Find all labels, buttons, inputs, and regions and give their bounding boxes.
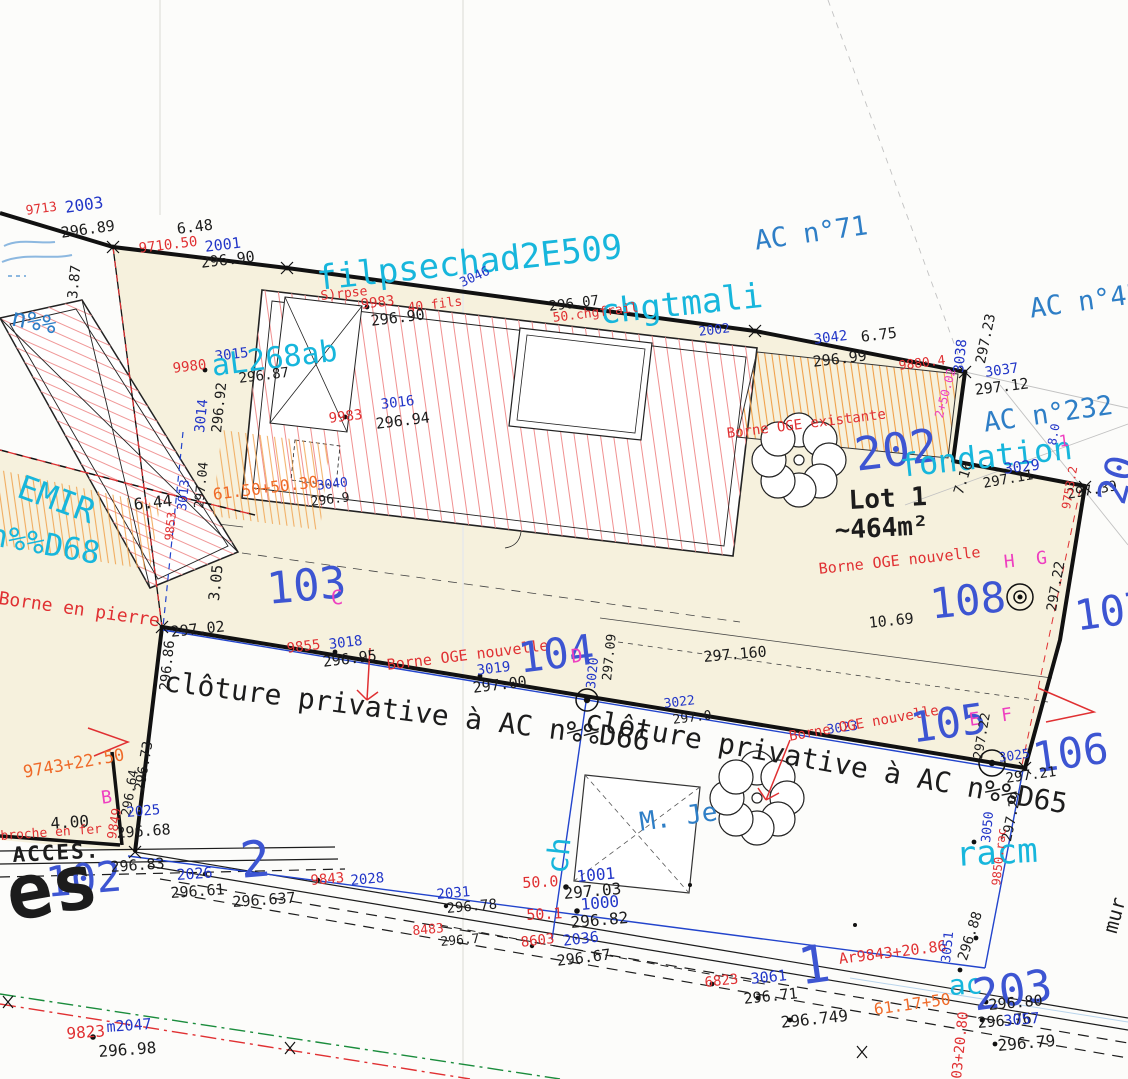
road-lines xyxy=(0,847,1128,1058)
faint-blue-line xyxy=(850,978,1128,1022)
building-m-je xyxy=(574,775,700,893)
axis-green-line xyxy=(0,994,560,1079)
blue-scribble-lines xyxy=(2,242,72,276)
courtyard xyxy=(509,328,652,440)
axis-red-line xyxy=(0,1004,470,1079)
cadastral-plan: 97132003296.896.489710.502001296.903.87A… xyxy=(0,0,1128,1079)
plan-linework xyxy=(0,0,1128,1079)
